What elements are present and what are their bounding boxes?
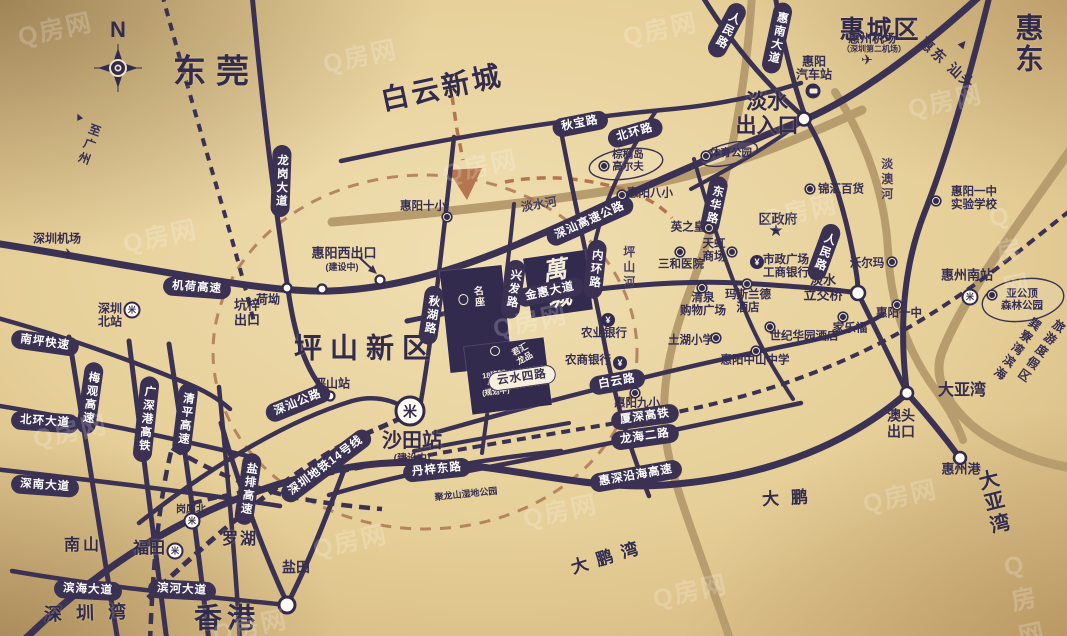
dot-huiyang-baxiao	[618, 191, 626, 199]
dot-shatianzhan-metro: 米	[395, 396, 426, 427]
compass-icon	[94, 44, 142, 92]
dot-shenzhen-jichang: ✈	[62, 246, 74, 263]
poi-shizheng-guangchang: 市政广场 工商银行	[763, 254, 809, 280]
poi-huiyang-shixiao: 惠阳十小	[400, 201, 446, 214]
dot-huiyang-qichezhan	[806, 84, 821, 99]
road-binhai-dadao: 滨海大道	[54, 579, 123, 601]
dot-huizhou-jichang: ✈	[861, 52, 873, 69]
label-shenzhen-beizhan: 深圳 北站	[98, 303, 122, 330]
label-aotou-chukou: 澳头 出口	[887, 408, 915, 439]
poi-jinhui-baihuo: 锦汇百货	[818, 184, 864, 197]
dot-tianhong	[728, 248, 736, 256]
jct-danshui-lijiaoqiao	[851, 286, 865, 300]
dot-huiyang-yizhong	[893, 301, 901, 309]
dot-huizhou-nanzhan: 米	[962, 289, 979, 306]
water-danaohe: 淡澳河	[879, 158, 892, 203]
label-huiyang-xichukou: 惠阳西出口	[311, 247, 376, 262]
jct-dayawan	[901, 387, 913, 399]
poi-huiyang-yizhong: 惠阳一中	[876, 308, 922, 321]
subproject-label: 君汇龙品	[508, 340, 537, 368]
poi-sanhe-yiyuan: 三和医院	[658, 259, 704, 272]
road-longgang-dadao: 龙岗大道	[270, 145, 291, 218]
dot-jialefu	[839, 313, 847, 321]
label-jianshezhong-xichukou: (建设中)	[326, 262, 359, 272]
dot-gongshang-yinhang: ¥	[750, 255, 764, 269]
area-futian: 福田	[133, 540, 165, 558]
jct-danshui-churukou	[798, 113, 811, 126]
poi-huiyang-zhongshan: 惠阳中山中学	[721, 355, 790, 368]
label-kengzi-chukou: 坑梓 出口	[234, 298, 260, 327]
dot-yizhong-shiyan	[932, 197, 940, 205]
label-huizhou-jichang-sub: （深圳第二机场）	[842, 46, 906, 55]
poi-tiyu-gongyuan: 体育公园	[710, 148, 752, 160]
location-map: N 名座 萬城 18班制 小学 (规划中) 君汇龙品 东莞白云新城惠城区惠东坪山…	[0, 0, 1067, 636]
poi-huiyang-baxiao: 惠阳八小	[627, 188, 673, 201]
poi-jialefu: 家乐福	[833, 323, 868, 336]
dot-woerma	[888, 258, 896, 266]
poi-woerma: 沃尔玛	[850, 258, 885, 271]
dot-jinhui-baihuo	[806, 185, 814, 193]
poi-tianhong-shangchang: 天虹 商场	[703, 238, 726, 264]
label-yantian: 盐田	[282, 560, 310, 576]
dot-quzhengfu-star: ★	[768, 221, 783, 241]
route-arrowhead	[448, 168, 482, 200]
area-dongguan: 东莞	[173, 54, 259, 91]
label-huiyang-qichezhan: 惠阳 汽车站	[796, 56, 832, 83]
dot-futian-metro: 米	[167, 543, 184, 560]
dot-masilande	[743, 280, 751, 288]
jct-yantian	[279, 597, 295, 613]
area-nanshan: 南山	[64, 537, 102, 555]
dot-tuhu-xiaoxue	[712, 334, 720, 342]
label-huizhou-nanzhan: 惠州南站	[941, 269, 993, 284]
poi-nongshang-yinhang: 农商银行	[565, 355, 611, 368]
dot-huiyang-shixiao	[443, 213, 451, 221]
dot-golf	[600, 162, 608, 170]
dot-yagongding	[988, 291, 996, 299]
dot-yingzhihuang	[705, 224, 713, 232]
dot-shiji-huayuan	[766, 323, 774, 331]
area-dapeng: 大鹏	[762, 487, 821, 509]
label-huizhougang: 惠州港	[941, 463, 980, 478]
poi-shiji-huayuan-jiudian: 世纪华园酒店	[770, 331, 839, 344]
poi-masilande-jiudian: 玛斯兰德 酒店	[725, 289, 771, 315]
label-shatianzhan: 沙田站	[382, 430, 442, 452]
poi-huiyang-yizhong-shiyan: 惠阳一中 实验学校	[951, 186, 997, 212]
dot-sanhe-yiyuan	[676, 248, 684, 256]
area-shenzhenwan: 深圳湾	[44, 601, 141, 624]
poi-zonglvdao-gaoerfu: 棕榈岛 高尔夫	[612, 149, 644, 173]
coastal-expressway	[22, 393, 907, 636]
dot-huiyang-zhongshan	[752, 347, 760, 355]
block-a-logo-icon	[458, 293, 469, 305]
area-luohu: 罗湖	[222, 531, 258, 549]
area-pingshan-xinqu: 坪山新区	[294, 332, 438, 363]
label-shenzhen-jichang: 深圳机场	[33, 232, 81, 245]
label-danshui-churukou: 淡水 出入口	[736, 90, 799, 137]
poi-yagongding: 亚公顶 森林公园	[1001, 288, 1043, 312]
jct-heao	[283, 284, 292, 293]
compass-north-label: N	[110, 17, 126, 43]
poi-qingquan-gouwu: 清泉 购物广场	[680, 292, 726, 318]
road-binhe-dadao: 滨河大道	[148, 579, 217, 601]
poi-tuhu-xiaoxue: 土湖小学	[668, 335, 714, 348]
block-a-label: 名座	[470, 285, 491, 309]
dot-gangxiabei-metro: 米	[184, 513, 201, 530]
dot-tiyu-gongyuan	[702, 152, 710, 160]
dot-shenzhen-beizhan: 米	[124, 302, 141, 319]
area-huidong: 惠东	[1013, 13, 1049, 76]
dot-qingquan	[698, 284, 706, 292]
dot-school-block	[490, 346, 500, 356]
jct-kengzi	[318, 285, 327, 294]
dot-huiyang-jiuxiao	[631, 389, 639, 397]
dot-nongye-yinhang: ¥	[601, 313, 615, 327]
hk-border-dashed	[150, 448, 382, 636]
poi-nongye-yinhang: 农业银行	[581, 328, 627, 341]
water-pingshanhe: 坪山河	[621, 246, 634, 291]
area-xianggang: 香港	[194, 602, 260, 633]
jct-huiyang-west	[376, 276, 385, 285]
label-dayawan-jct: 大亚湾	[938, 382, 986, 400]
dot-nongshang-yinhang: ¥	[613, 356, 627, 370]
